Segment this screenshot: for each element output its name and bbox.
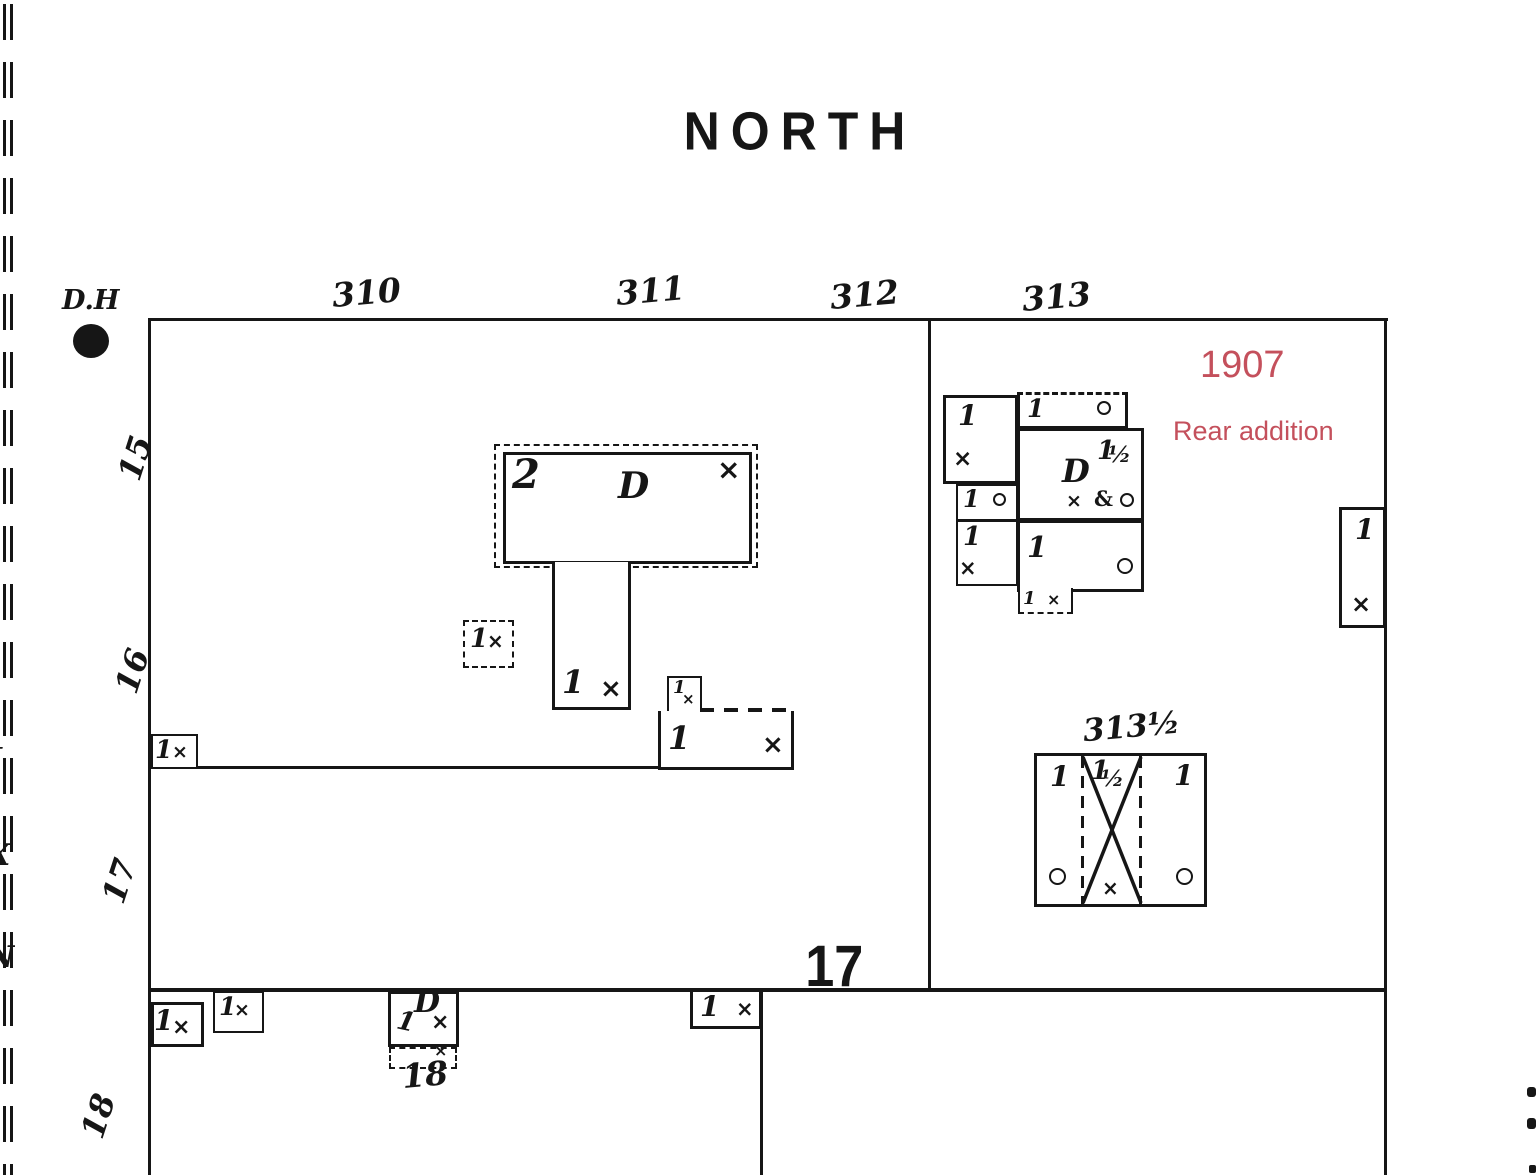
block-number: 17	[805, 938, 863, 996]
fence-outbuilding-storeys: 1	[155, 737, 172, 762]
block-border-east	[1384, 318, 1387, 1175]
bldg313-f-storeys: 1	[1027, 533, 1047, 562]
bldg313-dwelling-label: D	[1062, 455, 1090, 487]
lot-number-18: 18	[76, 1090, 120, 1142]
left-edge-clipped-glyphs: J X N	[0, 740, 15, 1000]
annotation-note: Rear addition	[1173, 418, 1334, 445]
dashed-shed-storeys: 1	[470, 626, 488, 652]
bldg313-storeys-half: ½	[1108, 444, 1131, 466]
right-edge-clipped-mark	[1527, 1087, 1536, 1097]
window-vent-icon	[1097, 401, 1111, 415]
dashed-shed-roof-mark: ×	[487, 631, 504, 651]
bldg313-e-storeys: 1	[963, 524, 981, 550]
right-edge-clipped-mark	[1529, 1165, 1536, 1173]
bldg313-g-roof-mark: ×	[1047, 592, 1060, 608]
address-313half-label: 313½	[1082, 708, 1181, 747]
south-outbuilding-2-roof-mark: ×	[234, 1001, 250, 1020]
block-border-north	[148, 318, 1388, 321]
rear-outbuilding-roof-mark: ×	[762, 732, 784, 758]
rear-outbuilding-dashed-top	[700, 708, 795, 712]
right-edge-clipped-mark	[1527, 1118, 1536, 1129]
south-outbuilding-1-storeys: 1	[154, 1007, 173, 1035]
east-outbuilding-roof-mark: ×	[1351, 592, 1371, 616]
south-outbuilding-1-roof-mark: ×	[172, 1017, 190, 1039]
window-vent-icon	[1117, 558, 1133, 574]
fence-line	[150, 766, 660, 769]
clipped-glyph: X	[0, 838, 10, 873]
dh-label: D.H	[62, 287, 119, 314]
lot-line-mid	[928, 318, 931, 992]
window-vent-icon	[993, 493, 1006, 506]
bldg313half-west-storeys: 1	[1050, 763, 1069, 791]
window-vent-icon	[1176, 868, 1193, 885]
south-house-number: 18	[401, 1056, 450, 1093]
east-outbuilding-storeys: 1	[1355, 516, 1374, 544]
bldg313-a-roof-mark: ×	[953, 448, 972, 471]
storeys-label: 2	[512, 455, 540, 495]
bldg313-b-storeys: 1	[1027, 396, 1044, 421]
street-number-312: 312	[829, 275, 901, 314]
south-outbuilding-3-storeys: 1	[700, 993, 719, 1021]
bldg313half-east-storeys: 1	[1174, 762, 1193, 790]
window-vent-icon	[1120, 493, 1134, 507]
bldg313-a-storeys: 1	[958, 402, 977, 430]
rear-ell-storeys: 1	[562, 666, 584, 698]
street-number-310: 310	[331, 273, 403, 312]
south-outbuilding-3-roof-mark: ×	[736, 999, 754, 1020]
street-number-311: 311	[615, 271, 687, 310]
bldg313-e-roof-mark: ×	[959, 558, 977, 579]
shingle-roof-mark: ×	[717, 456, 740, 484]
bldg313-g-storeys: 1	[1023, 590, 1036, 608]
bldg313half-mid-storeys-half: ½	[1101, 768, 1124, 790]
dh-dot-icon	[73, 324, 109, 358]
dwelling-label: D	[618, 468, 649, 504]
rear-outbuilding-storeys: 1	[668, 722, 690, 754]
bldg313-amp: &	[1094, 488, 1113, 509]
block-border-south	[148, 988, 1387, 992]
rear-ell-roof-mark: ×	[600, 676, 622, 702]
bldg313half-roof-mark: ×	[1102, 878, 1119, 898]
bldg313-roof-mark: ×	[1066, 492, 1082, 511]
map-title: NORTH	[620, 104, 980, 158]
south-dwelling-roof-mark: ×	[431, 1012, 449, 1034]
stacked-box-roof-mark: ×	[682, 692, 695, 707]
window-vent-icon	[1049, 868, 1066, 885]
bldg313-d-storeys: 1	[963, 487, 980, 511]
fence-outbuilding-roof-mark: ×	[172, 743, 188, 762]
clipped-glyph: N	[0, 940, 14, 975]
sanborn-map-canvas: J X N D.H NORTH 310 311 312 313 1907 Rea…	[0, 0, 1536, 1175]
lot-number-17: 17	[97, 855, 141, 907]
street-number-313: 313	[1021, 277, 1093, 316]
annotation-year: 1907	[1200, 346, 1285, 384]
clipped-glyph: J	[0, 742, 1, 777]
